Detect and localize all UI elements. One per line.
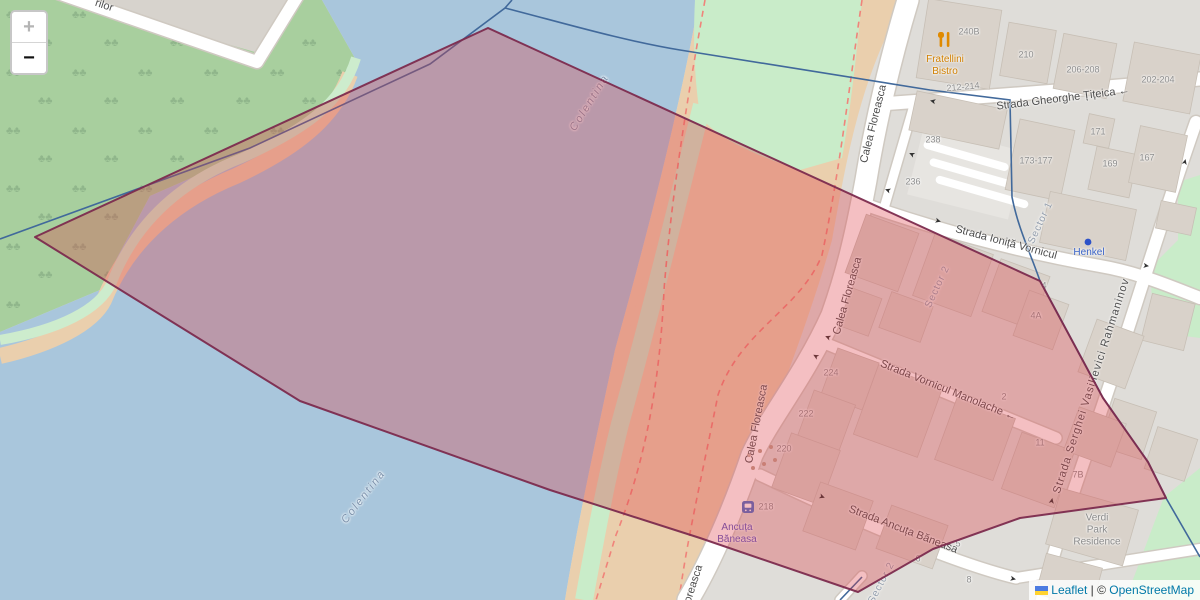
openstreetmap-link[interactable]: OpenStreetMap — [1109, 583, 1194, 597]
ukraine-flag-icon — [1035, 586, 1048, 595]
zoom-control: + − — [10, 10, 48, 75]
henkel-poi-dot — [1085, 239, 1092, 246]
leaflet-link[interactable]: Leaflet — [1051, 583, 1087, 597]
zoom-out-button[interactable]: − — [12, 42, 46, 73]
attribution-bar: Leaflet | © OpenStreetMap — [1029, 580, 1200, 600]
attribution-separator: | © — [1087, 583, 1109, 597]
leaflet-map[interactable]: ♣♣ ♣♣ — [0, 0, 1200, 600]
zoom-in-button[interactable]: + — [12, 12, 46, 42]
